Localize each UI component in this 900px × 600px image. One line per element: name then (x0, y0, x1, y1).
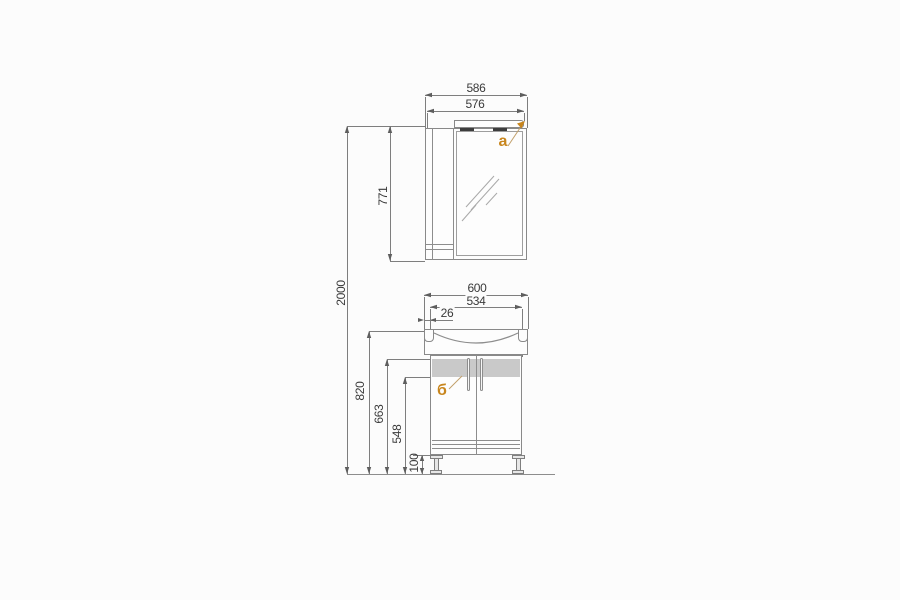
dim-line-820 (369, 331, 370, 474)
dim-text-2000: 2000 (335, 280, 347, 306)
dim-ext-600-left (424, 297, 425, 329)
mirror-cabinet-column-line (453, 128, 454, 260)
dim-line-26 (424, 320, 453, 321)
label-base-unit: б (437, 383, 447, 399)
drawing-detail-overlay (0, 0, 900, 600)
dim-text-771: 771 (377, 186, 389, 205)
dim-text-548: 548 (391, 424, 403, 443)
washbasin-outline (424, 329, 528, 355)
leg-right-foot (512, 470, 524, 474)
mounting-clip (460, 128, 474, 131)
leg-left-foot (430, 470, 442, 474)
door-bottom-groove (432, 444, 520, 445)
dim-text-26: 26 (440, 307, 455, 319)
label-mirror-unit: а (499, 134, 508, 150)
floor-line (347, 474, 555, 475)
mirror-pane (456, 131, 523, 256)
door-bottom-groove (432, 448, 520, 449)
dim-line-576 (427, 111, 524, 112)
ext-line-cabinet-top (347, 126, 425, 127)
ext-line-rim (369, 331, 424, 332)
dim-text-600: 600 (466, 282, 487, 294)
dim-text-576: 576 (464, 98, 485, 110)
light-fixture-bar (454, 120, 524, 128)
dim-text-534: 534 (465, 295, 486, 307)
door-handle-left (467, 358, 470, 391)
dim-line-586 (425, 95, 527, 96)
door-bottom-groove (432, 440, 520, 441)
dim-text-820: 820 (354, 381, 366, 400)
technical-drawing-canvas: 586 576 2000 771 820 663 548 100 600 534… (0, 0, 900, 600)
ext-line-mirror-bottom (390, 261, 425, 262)
dim-text-586: 586 (465, 82, 486, 94)
dim-ext-576-right (524, 113, 525, 121)
dim-ext-586-left (425, 97, 426, 128)
dim-line-663 (387, 359, 388, 474)
mounting-clip (493, 128, 507, 131)
side-shelf-line (426, 249, 453, 250)
ext-line-door-top (405, 377, 430, 378)
dim-line-548 (405, 377, 406, 474)
dim-ext-600-right (528, 297, 529, 329)
dim-line-100 (422, 455, 423, 474)
dim-text-100: 100 (408, 453, 420, 472)
dim-ext-576-left (427, 113, 428, 128)
side-shelf-line (426, 244, 453, 245)
washbasin-rim-left (424, 329, 434, 342)
dim-line-771 (390, 126, 391, 261)
mirror-cabinet-side-strip-line (432, 128, 433, 260)
washbasin-rim-right (518, 329, 528, 342)
ext-line-apron-top (387, 359, 430, 360)
door-handle-right (480, 358, 483, 391)
dim-text-663: 663 (373, 404, 385, 423)
dim-ext-586-right (527, 97, 528, 128)
